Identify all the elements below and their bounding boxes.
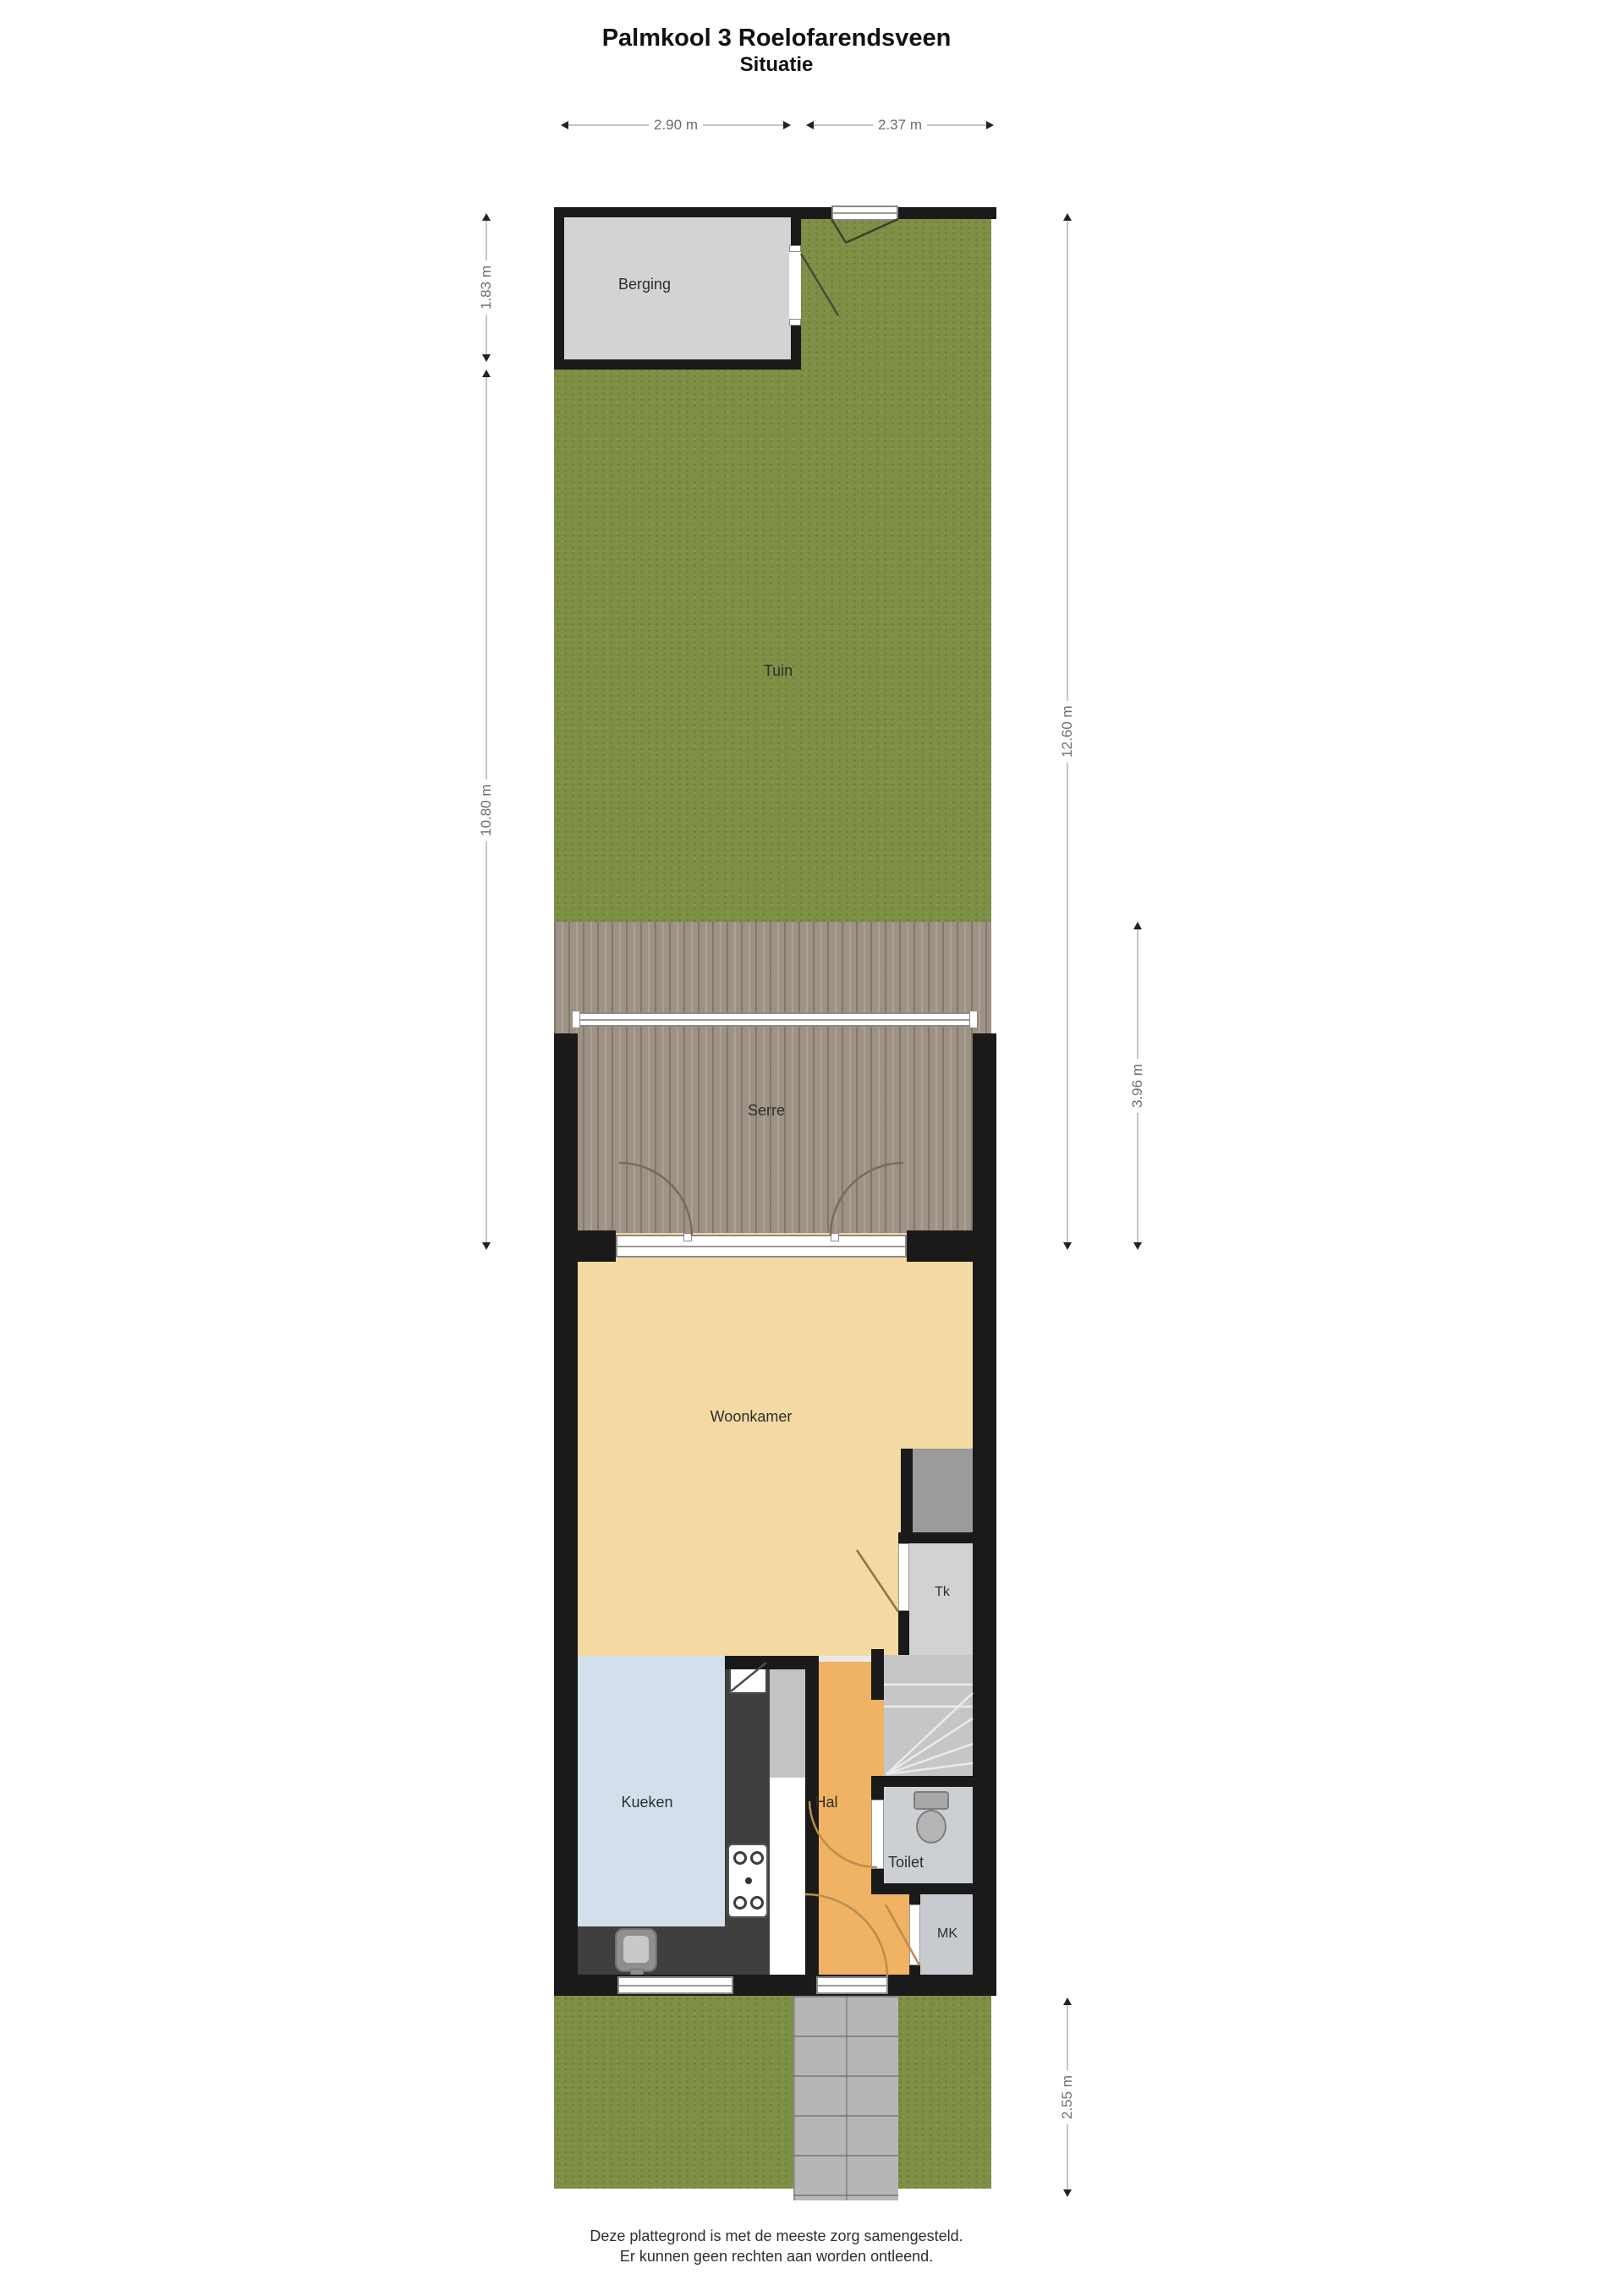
house-right-wall <box>973 1033 996 1996</box>
room-label-mk: MK <box>929 1926 966 1943</box>
arrow-left-icon <box>806 121 814 129</box>
room-label-serre: Serre <box>724 1102 809 1119</box>
arrow-down-icon <box>1133 1242 1142 1250</box>
door-hinge <box>831 1233 839 1241</box>
dimension-right-serre: 3.96 m <box>1131 922 1144 1250</box>
burner-icon <box>733 1851 747 1865</box>
mk-door <box>909 1904 920 1965</box>
stairs-spine-wall <box>871 1649 884 1700</box>
dimension-label: 2.55 m <box>1058 2070 1077 2124</box>
kitchen-tall-cabinet <box>770 1669 805 1778</box>
kitchen-hal-wall <box>805 1656 819 1976</box>
dimension-left-garden: 10.80 m <box>480 370 493 1250</box>
garden-path <box>793 1996 898 2200</box>
serre-front-wall-left <box>578 1230 616 1262</box>
dimension-label: 10.80 m <box>477 779 496 841</box>
glass-wall-post <box>969 1011 978 1028</box>
serre-decking <box>554 922 991 1233</box>
stove-knob-icon <box>745 1877 752 1884</box>
dimension-label: 12.60 m <box>1058 700 1077 762</box>
mk-top-wall <box>871 1883 996 1894</box>
kitchen-counter-bottom <box>578 1926 770 1976</box>
toilet-bowl-icon <box>916 1810 946 1844</box>
dimension-right-total: 12.60 m <box>1061 213 1074 1250</box>
arrow-down-icon <box>1063 1242 1072 1250</box>
dimension-left-berging: 1.83 m <box>480 213 493 362</box>
tk-side-wall <box>898 1611 909 1658</box>
house-left-wall <box>554 1033 578 1996</box>
dimension-label: 3.96 m <box>1128 1059 1147 1113</box>
floorplan-canvas: Palmkool 3 Roelofarendsveen Situatie 2.9… <box>0 0 1624 2296</box>
dimension-label: 1.83 m <box>477 260 496 315</box>
arrow-left-icon <box>561 121 568 129</box>
hal-threshold <box>819 1656 871 1662</box>
page-title: Palmkool 3 Roelofarendsveen Situatie <box>523 24 1030 78</box>
room-keuken <box>578 1656 725 1928</box>
serre-glass-wall <box>576 1012 974 1027</box>
arrow-up-icon <box>482 213 491 221</box>
front-door <box>816 1976 888 1994</box>
burner-icon <box>733 1896 747 1910</box>
arrow-down-icon <box>482 1242 491 1250</box>
arrow-up-icon <box>482 370 491 377</box>
serre-front-wall-right <box>907 1230 973 1262</box>
kitchen-sink <box>615 1928 657 1972</box>
arrow-up-icon <box>1133 922 1142 929</box>
woonkamer-french-doors <box>616 1235 907 1258</box>
toilet-top-wall <box>871 1776 996 1787</box>
chimney-wall <box>901 1449 913 1539</box>
stove <box>727 1844 768 1918</box>
tk-door <box>898 1543 909 1611</box>
glass-wall-post <box>572 1011 580 1028</box>
garden-gate <box>831 205 898 221</box>
door-hinge <box>789 245 801 252</box>
dimension-top-left: 2.90 m <box>561 118 791 132</box>
arrow-up-icon <box>1063 213 1072 221</box>
arrow-down-icon <box>1063 2189 1072 2197</box>
room-label-woonkamer: Woonkamer <box>692 1408 810 1425</box>
arrow-right-icon <box>986 121 994 129</box>
door-hinge <box>789 319 801 326</box>
room-label-hal: Hal <box>801 1794 852 1811</box>
dimension-label: 2.37 m <box>873 116 927 134</box>
arrow-down-icon <box>482 354 491 362</box>
door-hinge <box>683 1233 692 1241</box>
chimney-block <box>913 1449 973 1539</box>
dimension-label: 2.90 m <box>649 116 703 134</box>
staircase <box>884 1655 973 1776</box>
disclaimer-line1: Deze plattegrond is met de meeste zorg s… <box>480 2226 1073 2246</box>
burner-icon <box>750 1896 764 1910</box>
room-label-tk: Tk <box>924 1584 961 1601</box>
title-subtitle: Situatie <box>523 52 1030 78</box>
disclaimer: Deze plattegrond is met de meeste zorg s… <box>480 2226 1073 2266</box>
kitchen-window <box>617 1976 733 1994</box>
room-label-toilet: Toilet <box>872 1854 940 1871</box>
berging-door <box>789 249 801 321</box>
arrow-up-icon <box>1063 1997 1072 2005</box>
disclaimer-line2: Er kunnen geen rechten aan worden ontlee… <box>480 2246 1073 2266</box>
title-address: Palmkool 3 Roelofarendsveen <box>523 24 1030 52</box>
tk-top-wall <box>898 1532 973 1543</box>
front-garden <box>554 1996 991 2189</box>
room-label-tuin: Tuin <box>736 662 820 679</box>
room-label-keuken: Kueken <box>596 1794 698 1811</box>
toilet-tank-icon <box>913 1791 949 1810</box>
burner-icon <box>750 1851 764 1865</box>
dimension-top-right: 2.37 m <box>806 118 994 132</box>
room-label-berging: Berging <box>602 276 687 293</box>
arrow-right-icon <box>783 121 791 129</box>
dimension-right-front: 2.55 m <box>1061 1997 1074 2197</box>
